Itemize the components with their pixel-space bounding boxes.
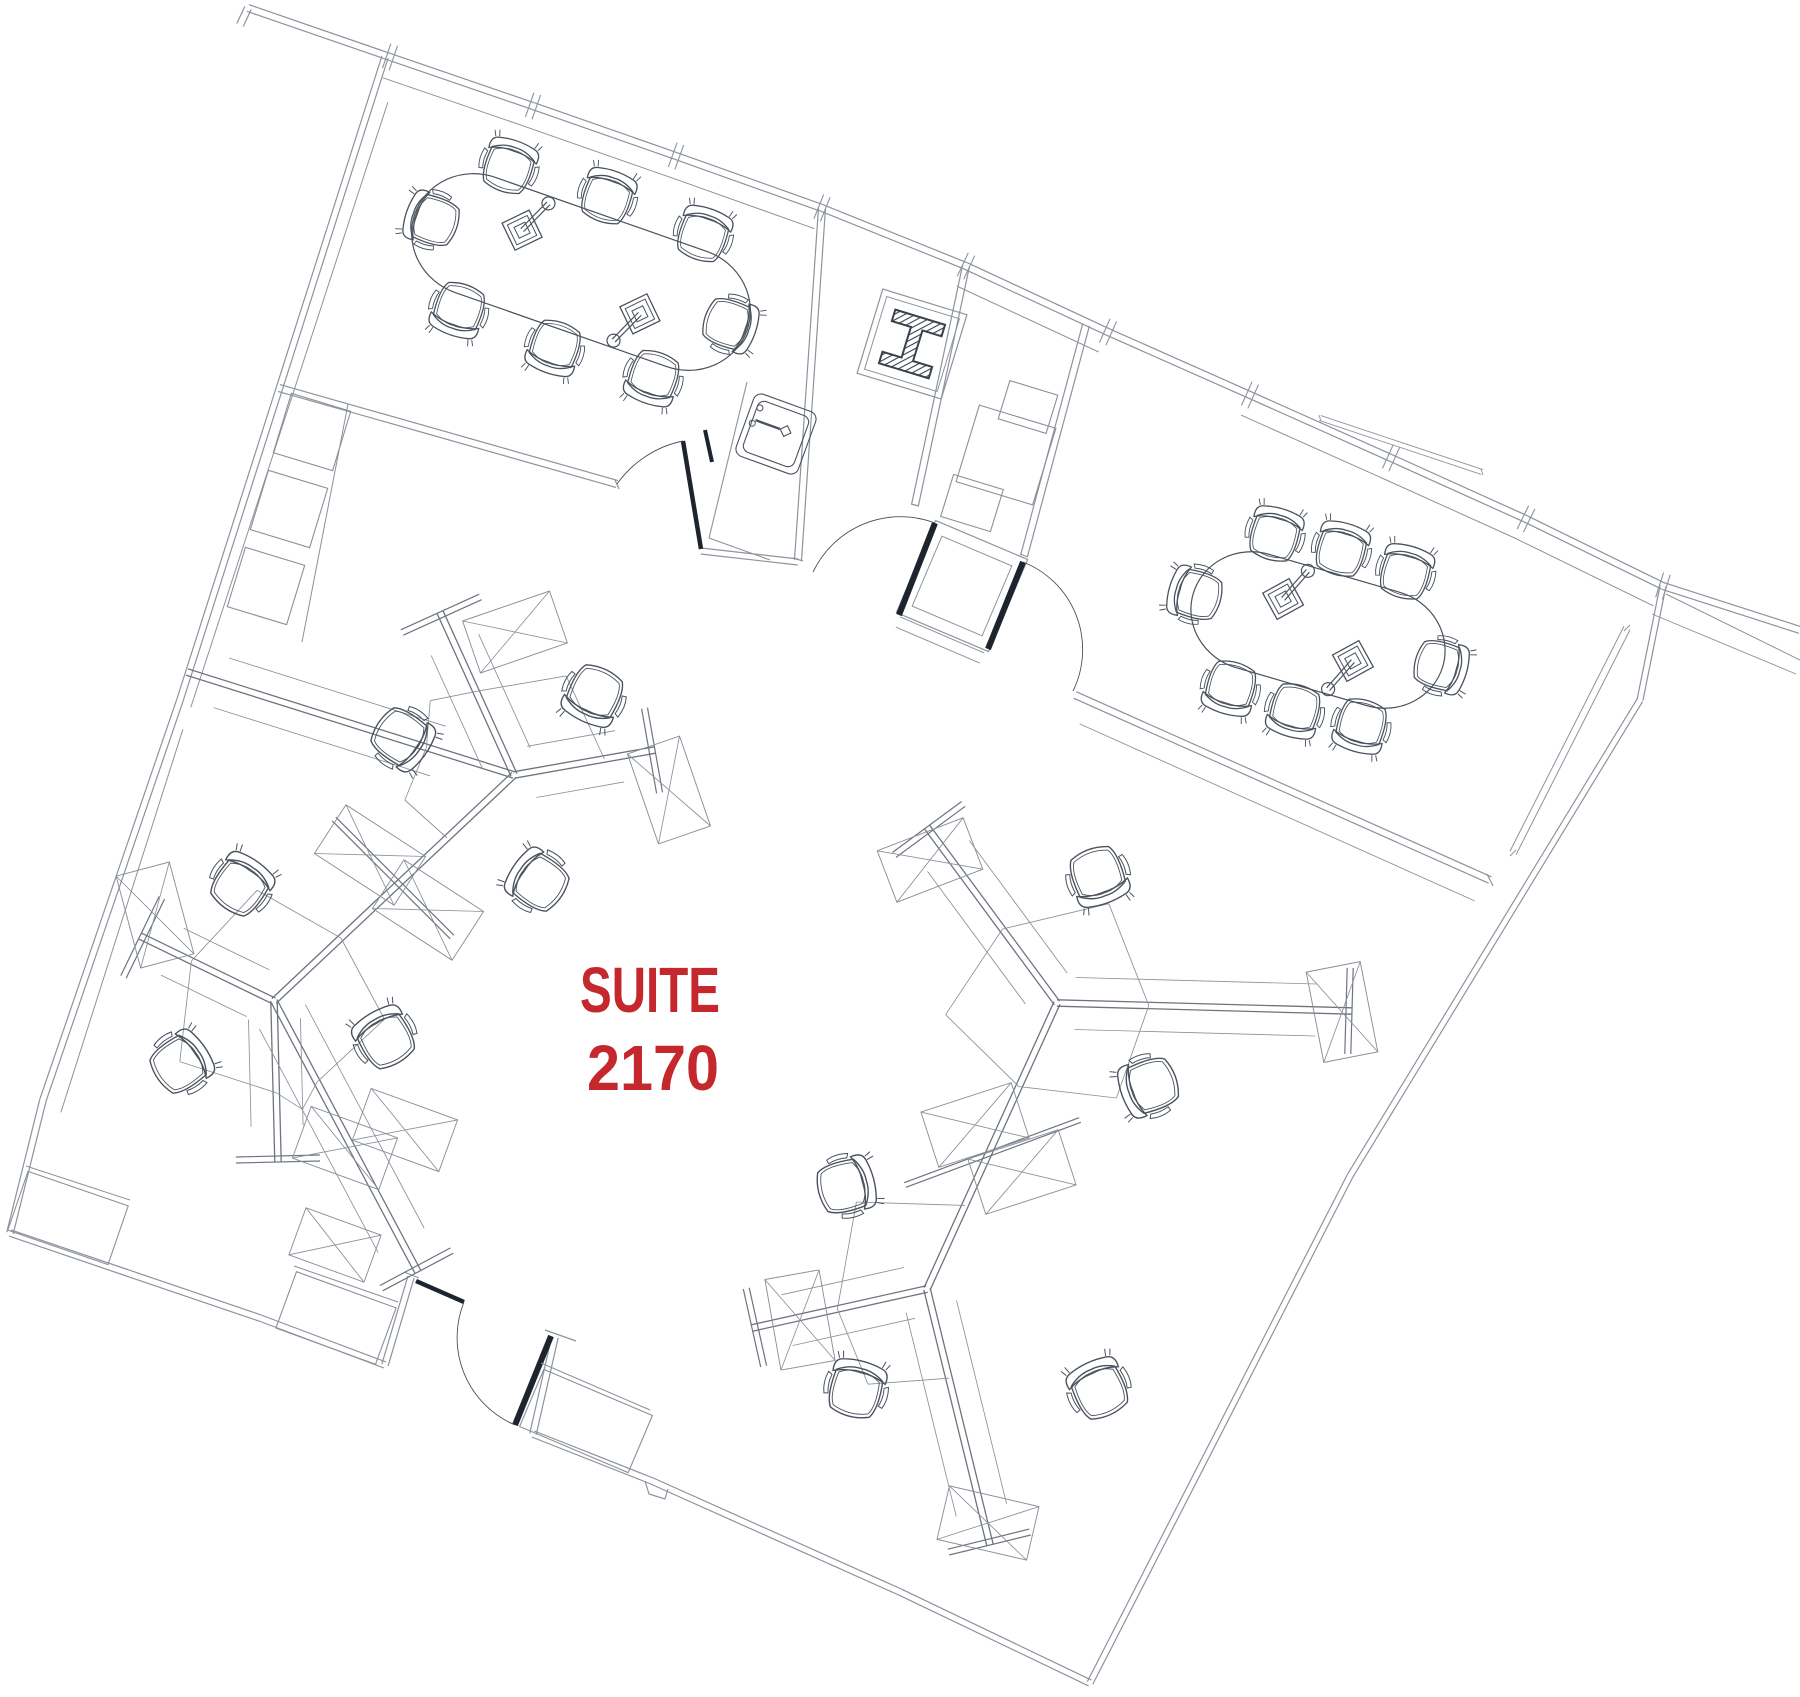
svg-text:SUITE: SUITE <box>580 954 720 1026</box>
svg-text:2170: 2170 <box>587 1032 719 1104</box>
